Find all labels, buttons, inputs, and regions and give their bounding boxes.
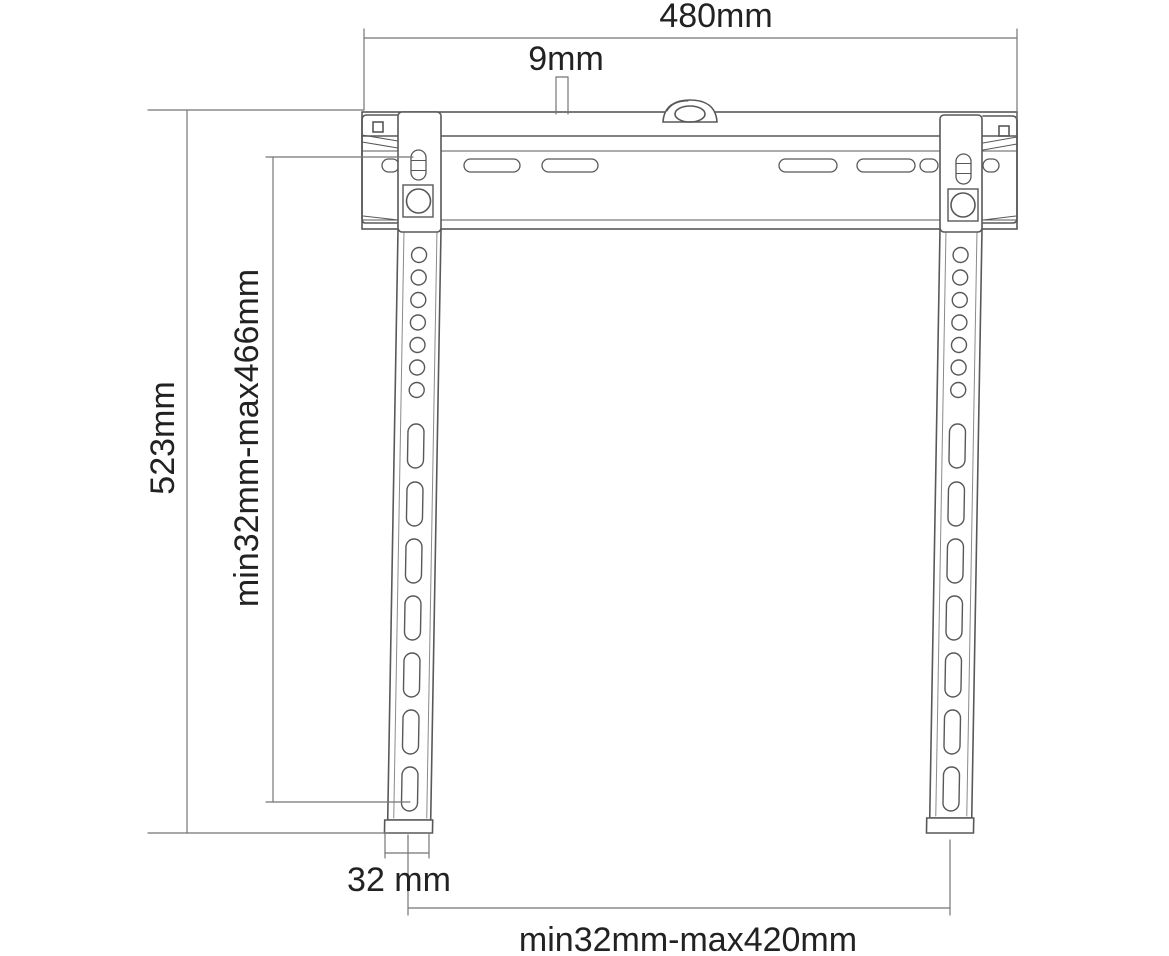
dim-523	[148, 110, 387, 833]
hanging-tab	[663, 100, 717, 122]
dim-32	[385, 833, 429, 858]
dim-420-label: min32mm-max420mm	[519, 923, 857, 956]
dim-9-label: 9mm	[528, 42, 604, 76]
bracket-dimension-drawing: 480mm 9mm 523mm min32mm-max466mm 32 mm m…	[0, 0, 1169, 956]
left-arm-hook	[398, 112, 441, 232]
right-arm-hook	[940, 115, 982, 232]
dim-420	[408, 835, 950, 915]
right-arm-bottom-cap	[926, 818, 973, 833]
wall-rail	[362, 112, 1017, 229]
hook-slot	[411, 150, 426, 180]
dim-32-label: 32 mm	[347, 863, 451, 897]
dim-523-label: 523mm	[146, 381, 180, 494]
locking-pad	[948, 189, 978, 221]
dim-9	[556, 77, 568, 114]
left-arm-bottom-cap	[384, 820, 432, 833]
dim-466-label: min32mm-max466mm	[230, 269, 264, 607]
dim-480-label: 480mm	[659, 0, 772, 33]
hook-slot	[956, 154, 971, 184]
